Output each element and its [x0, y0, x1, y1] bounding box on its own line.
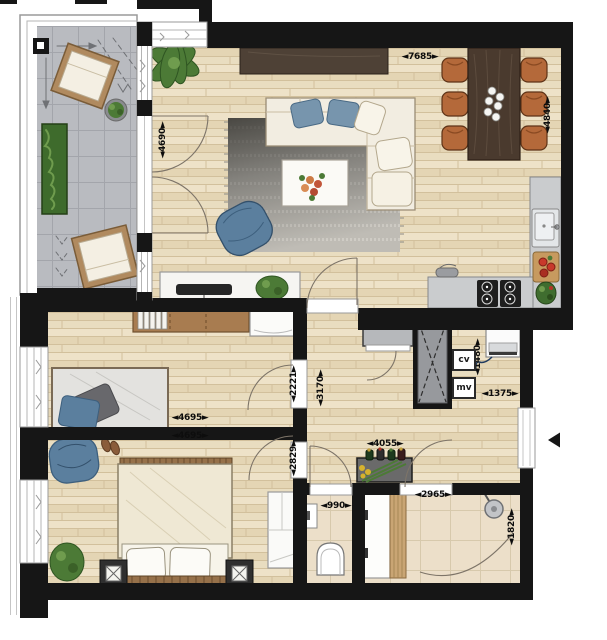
dining-set	[442, 48, 547, 160]
wall-balcony-south	[37, 288, 140, 300]
vanity	[362, 492, 406, 578]
vegetables	[536, 282, 556, 304]
tv	[176, 284, 232, 295]
headboard	[118, 576, 232, 584]
nightstand	[100, 560, 127, 587]
entrance-arrow	[548, 433, 560, 448]
dim-label-1820: ◄1820►	[506, 500, 518, 554]
dim-label-1375: ◄1375►	[473, 388, 527, 400]
window-bedroom2	[20, 480, 48, 563]
window-bedroom1	[20, 347, 48, 427]
double-bed	[118, 458, 232, 584]
wall-bath-north	[452, 483, 520, 495]
dim-label-2221: ◄2221►	[288, 357, 300, 411]
nightstand	[226, 560, 253, 587]
wall-west	[20, 427, 48, 480]
wall-west	[20, 293, 48, 347]
tv-cabinet	[160, 272, 300, 302]
plant	[50, 543, 84, 581]
wall-kitchen-south	[358, 308, 573, 330]
dim-label-2965: ◄2965►	[406, 489, 460, 501]
cv-box: cv	[452, 349, 476, 371]
doorway-wc	[310, 484, 352, 495]
floor-plan: ◄7685► ◄4840► ◄4690► ◄4695► ◄4695► ◄2221…	[0, 0, 607, 640]
dining-table	[468, 48, 520, 160]
dim-label-4840: ◄4840►	[542, 88, 554, 142]
wall-stub	[75, 0, 107, 4]
dim-label-4690: ◄4690►	[157, 113, 169, 167]
entrance-door	[518, 408, 535, 468]
wall-stub	[199, 0, 212, 24]
wall-wc-north	[352, 483, 365, 495]
closet-door	[366, 345, 410, 351]
wall-stub	[0, 0, 17, 4]
coffee-table	[282, 160, 348, 206]
tv-plant	[256, 276, 288, 300]
toilet	[317, 543, 344, 575]
throw-pillow	[375, 137, 413, 172]
wardrobe	[268, 492, 296, 568]
wall-hall-west	[293, 312, 307, 360]
dim-label-4695-bedroom1: ◄4695►	[163, 412, 217, 424]
dim-label-4055: ◄4055►	[358, 438, 412, 450]
wall-east-upper	[561, 22, 573, 330]
dim-label-2829: ◄2829►	[288, 431, 300, 485]
armchair	[47, 435, 101, 485]
wall-living-south	[48, 298, 307, 312]
dim-label-4695-bedroom2: ◄4695►	[163, 430, 217, 442]
facade-line	[11, 297, 17, 615]
wall-bath-north	[365, 483, 400, 495]
sideboard	[240, 48, 388, 74]
wall-west	[20, 563, 48, 618]
potted-plant	[105, 99, 127, 121]
dim-label-990: ◄990►	[309, 500, 363, 512]
chaise-cushion	[372, 172, 412, 206]
cutting-board	[533, 252, 559, 282]
single-bed	[52, 368, 168, 431]
pillow	[58, 395, 101, 431]
dim-label-7685: ◄7685►	[393, 51, 447, 63]
wall-north	[207, 22, 573, 48]
kitchen-sink	[532, 209, 559, 247]
glazed-wall-balcony	[137, 22, 152, 312]
mv-box: mv	[452, 377, 476, 399]
window-living-north	[148, 22, 207, 47]
balcony-column-core	[37, 42, 44, 49]
wall-south	[20, 583, 533, 600]
doorway-living-hall	[307, 299, 358, 313]
hedge-planter	[42, 124, 67, 214]
dim-label-3170: ◄3170►	[315, 361, 327, 415]
